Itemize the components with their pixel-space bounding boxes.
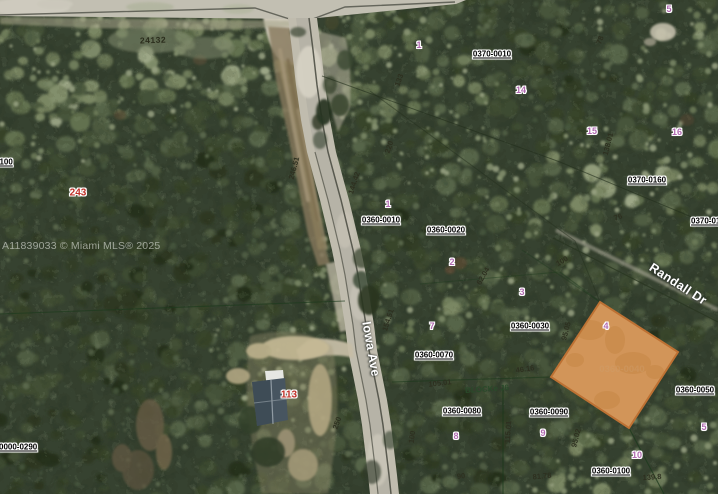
svg-text:0360-0040: 0360-0040 — [599, 364, 644, 375]
